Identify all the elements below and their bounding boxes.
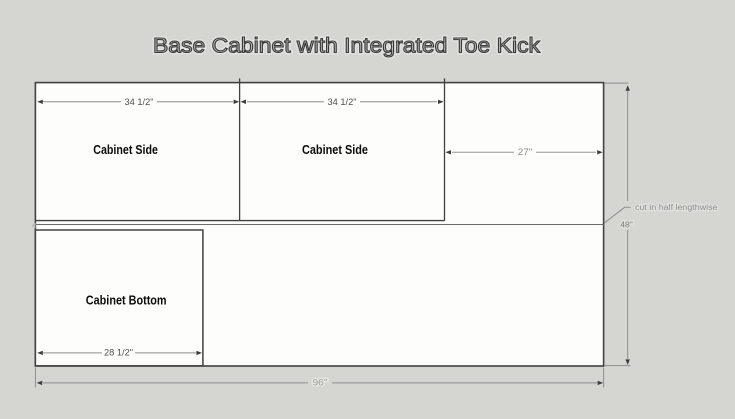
svg-text:34 1/2": 34 1/2" bbox=[328, 97, 357, 107]
svg-text:Cabinet Side: Cabinet Side bbox=[93, 143, 158, 157]
svg-text:Base Cabinet with Integrated T: Base Cabinet with Integrated Toe Kick bbox=[153, 34, 540, 58]
svg-text:48": 48" bbox=[620, 219, 633, 229]
svg-text:Cabinet Bottom: Cabinet Bottom bbox=[86, 294, 167, 308]
svg-text:96": 96" bbox=[313, 378, 328, 388]
svg-text:Cabinet Side: Cabinet Side bbox=[302, 143, 368, 157]
svg-text:cut in half lengthwise: cut in half lengthwise bbox=[635, 203, 718, 212]
svg-text:27": 27" bbox=[518, 147, 533, 157]
svg-text:28 1/2": 28 1/2" bbox=[104, 348, 133, 358]
svg-text:34 1/2": 34 1/2" bbox=[125, 97, 154, 107]
